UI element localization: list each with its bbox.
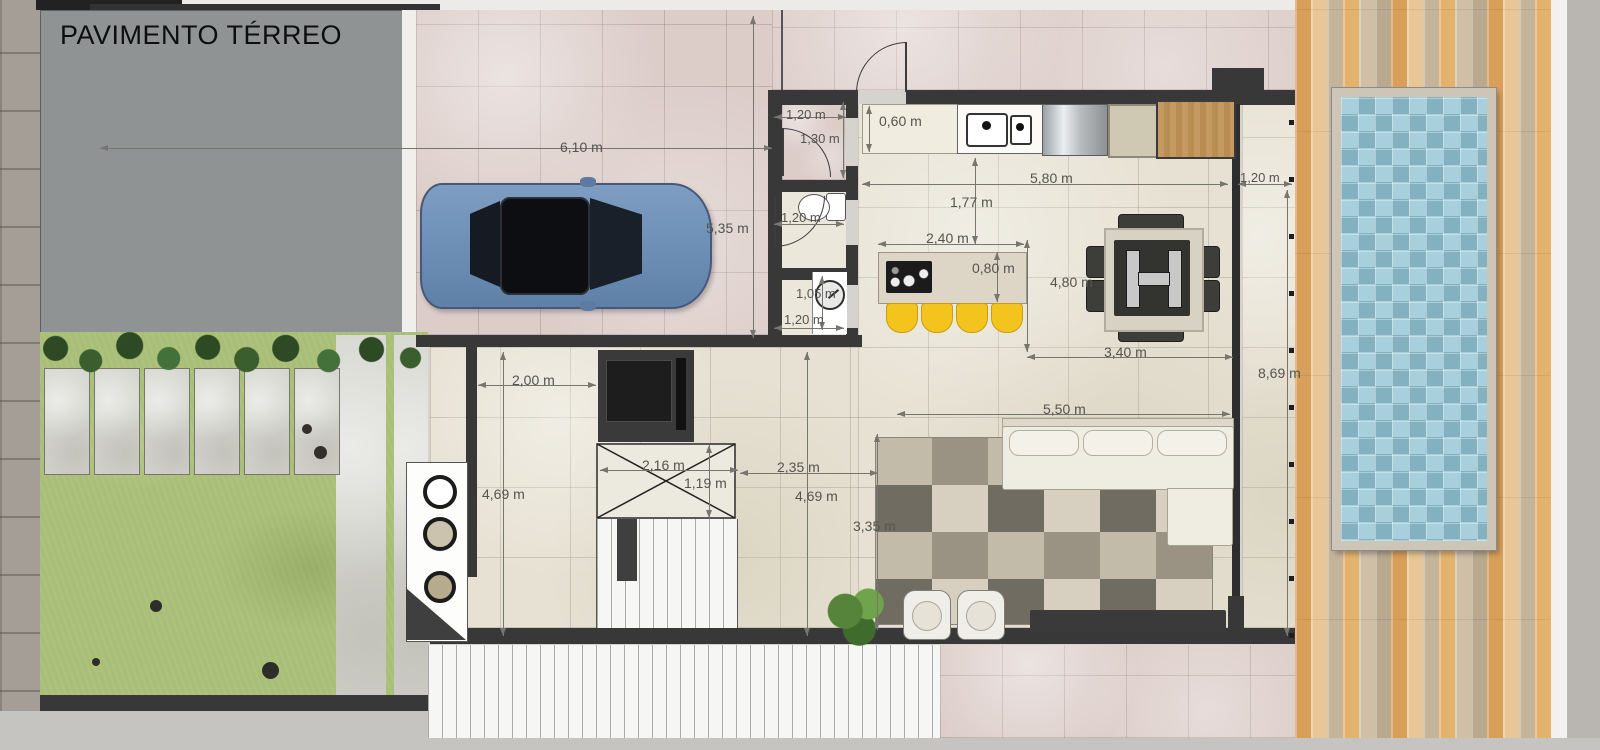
dim-label-corridor-width: 1,20 m [1240,170,1280,185]
panel-circle [423,517,457,551]
armchair [903,590,951,640]
car-rear-window [470,201,500,287]
right-sidewalk [1567,0,1600,750]
left-sidewalk [0,0,40,750]
table-h-cross [1138,272,1170,286]
fireplace-unit [598,350,694,442]
kitchen-cabinet-wood [1156,100,1236,159]
fence-post [1289,519,1294,524]
dim-label-entry-width: 1,20 m [786,107,826,122]
fence-post [1289,120,1294,125]
garden-bottom-wall [40,695,428,711]
stepping-stone [144,368,190,475]
dim-label-island-depth: 0,80 m [972,260,1015,276]
dim-label-rug-depth: 3,35 m [853,518,896,534]
pool [1332,88,1496,550]
dim-label-counter-depth: 0,60 m [879,113,922,129]
car [420,183,712,309]
kitchen-sink [957,104,1043,154]
fence-post [1289,291,1294,296]
bar-stool [991,303,1023,333]
plant [826,586,890,646]
garden-rock [150,600,162,612]
sink-drain [1016,123,1024,131]
car-mirror [580,177,596,187]
stepping-stone [194,368,240,475]
wall-entry-bath-sep [768,180,858,192]
dim-label-dining-depth: 4,80 m [1050,274,1093,290]
property-line [781,10,783,90]
wall-east-end-block [1228,596,1244,630]
fence-post [1289,405,1294,410]
dim-line [774,328,844,329]
right-border-strip [1551,0,1567,750]
dim-label-kitchen-clearance: 1,77 m [950,194,993,210]
armchair [957,590,1005,640]
page-title: PAVIMENTO TÉRREO [60,20,342,51]
fence-post [1289,576,1294,581]
dim-label-void-width: 2,16 m [642,457,685,473]
front-door-leaf [905,42,907,92]
dim-label-corridor-length: 8,69 m [1258,365,1301,381]
garden-path-strip [336,335,386,711]
sink-faucet [982,121,991,130]
dim-label-living-depth: 4,69 m [795,488,838,504]
dim-label-laundry-depth: 1,05 m [796,286,836,301]
sink-basin [966,113,1008,147]
entry-door-leaf [782,128,784,176]
fireplace-inner [606,360,672,422]
bottom-deck-slats [428,645,940,738]
dim-label-kitchen-width: 5,80 m [1030,170,1073,186]
garden-rock [314,446,327,459]
garden-rock [92,658,100,666]
dim-label-garage-depth: 5,35 m [706,220,749,236]
dim-label-living-width: 5,50 m [1043,401,1086,417]
wall-entry-kitchen-a [846,104,858,118]
armchair-seat [966,601,996,631]
bottom-sidewalk [0,738,1600,750]
cooktop [886,261,932,293]
table-h-bar [1168,250,1182,308]
panel-circle [423,475,457,509]
dim-line [100,148,772,149]
dim-label-garage-width: 6,10 m [560,139,603,155]
bar-stool [886,303,918,333]
armchair-seat [912,601,942,631]
dim-label-laundry-width: 1,20 m [784,312,824,327]
sofa-cushion [1009,430,1079,456]
dim-label-entry-depth: 1,30 m [800,131,840,146]
garden-rock [302,424,312,434]
car-windshield [590,198,642,290]
dim-label-dining-width: 3,40 m [1104,344,1147,360]
fireplace-side [676,358,686,430]
shrub-row [40,326,430,382]
dim-line [843,102,844,178]
dining-table [1104,228,1204,332]
stepping-stone [294,368,340,475]
driveway-panel [40,10,404,337]
floor-plan: 6,10 m 5,35 m 1,20 m 1,30 m 0,60 m 5,80 … [0,0,1600,750]
car-mirror [580,301,596,311]
dim-label-bathroom-width: 1,20 m [781,210,821,225]
curb-strip [402,10,416,347]
fridge [1042,104,1108,156]
dim-line [753,16,754,338]
bottom-patio-tiles [940,645,1295,738]
dim-label-hall-depth: 4,69 m [482,486,525,502]
stepping-stone [244,368,290,475]
dim-line [1287,190,1288,636]
pool-water [1341,97,1487,541]
kitchen-cabinet [1108,104,1158,158]
dim-label-island-length: 2,40 m [926,230,969,246]
sofa-chaise [1167,488,1233,546]
fence-post [1289,348,1294,353]
wall-garage-south [416,335,862,347]
stepping-stone [94,368,140,475]
panel-circle [424,571,456,603]
stepping-stone [44,368,90,475]
dim-label-void-depth: 1,19 m [684,475,727,491]
fence-post [1289,462,1294,467]
dim-line [1027,240,1028,352]
sofa [1002,426,1234,490]
garden-rock [262,662,279,679]
bar-stool [921,303,953,333]
stairs-landing [617,519,637,581]
dim-label-hall-width: 2,00 m [512,372,555,388]
sofa-cushion [1157,430,1227,456]
tv-console [1030,610,1226,632]
bar-stool [956,303,988,333]
dim-line [869,106,870,152]
dim-label-living-gap: 2,35 m [777,459,820,475]
wall-top-right [1264,90,1295,105]
fence-post [1289,234,1294,239]
sofa-cushion [1083,430,1153,456]
car-roof [500,197,590,295]
